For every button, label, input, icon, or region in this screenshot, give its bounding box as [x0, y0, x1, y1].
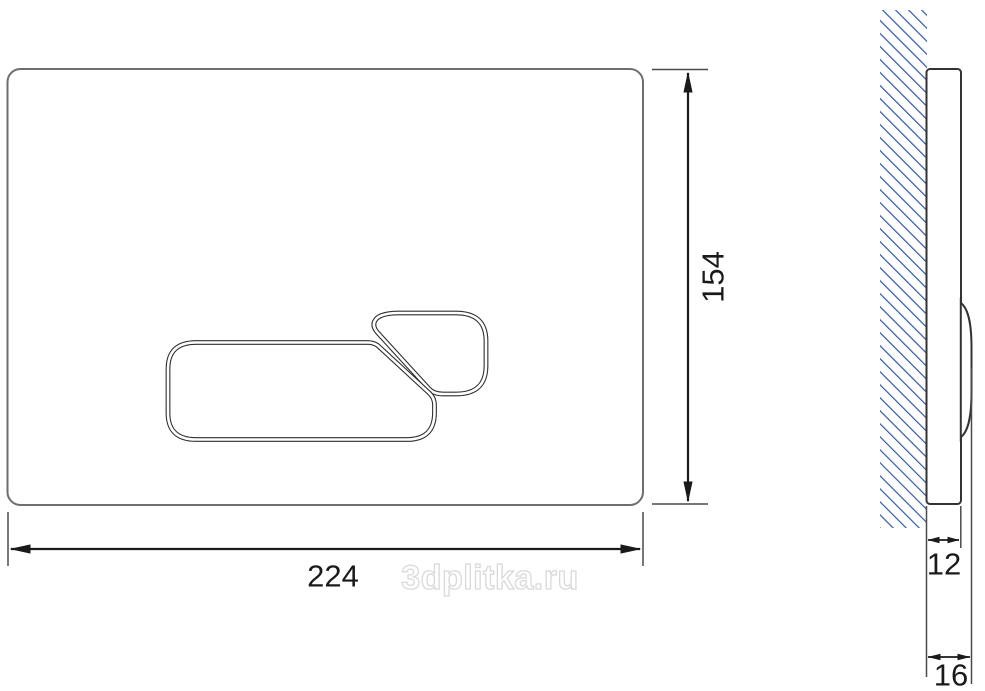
width-dimension-label: 224 [307, 559, 359, 594]
height-dimension: 154 [652, 70, 731, 505]
front-view: 154 224 [8, 69, 731, 594]
watermark: 3dplitka.ru [401, 559, 578, 597]
side-view: 12 16 [880, 10, 972, 691]
thickness-arrow-right-icon [948, 537, 960, 543]
drawing-canvas: 154 224 12 [0, 0, 985, 691]
height-arrow-up-icon [683, 72, 692, 93]
thickness-dimension-label: 12 [927, 547, 961, 582]
thickness-dimension: 12 [927, 537, 961, 582]
thickness-arrow-left-icon [928, 537, 940, 543]
total-thickness-dimension: 16 [928, 654, 971, 691]
width-arrow-left-icon [10, 544, 31, 553]
technical-drawing: 154 224 12 [0, 0, 985, 691]
width-arrow-right-icon [621, 544, 642, 553]
total-thickness-dimension-label: 16 [934, 658, 968, 691]
height-arrow-down-icon [683, 482, 692, 503]
button-bump-profile [961, 303, 972, 437]
wall-hatch [880, 10, 927, 528]
height-dimension-label: 154 [696, 251, 731, 303]
plate-side-profile [927, 69, 962, 504]
